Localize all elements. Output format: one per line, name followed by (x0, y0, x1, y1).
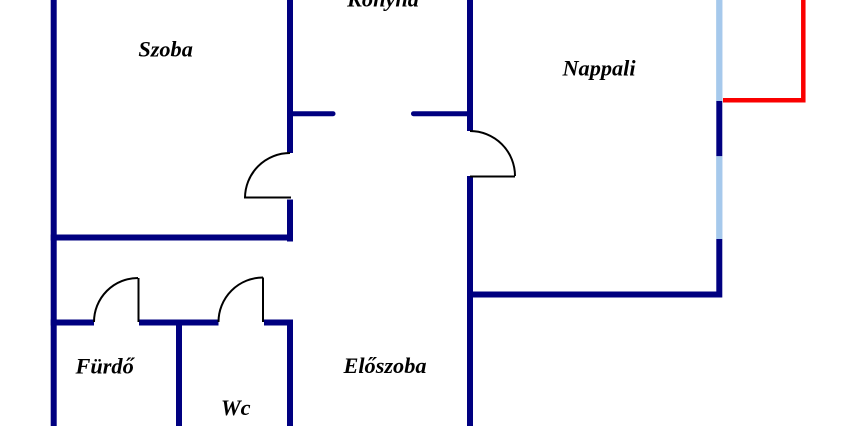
svg-text:Wc: Wc (221, 395, 251, 420)
svg-text:Szoba: Szoba (138, 37, 193, 62)
svg-text:Előszoba: Előszoba (342, 353, 426, 378)
svg-text:Nappali: Nappali (561, 55, 636, 80)
svg-text:Fürdő: Fürdő (74, 354, 135, 379)
svg-text:Konyha: Konyha (346, 0, 419, 11)
